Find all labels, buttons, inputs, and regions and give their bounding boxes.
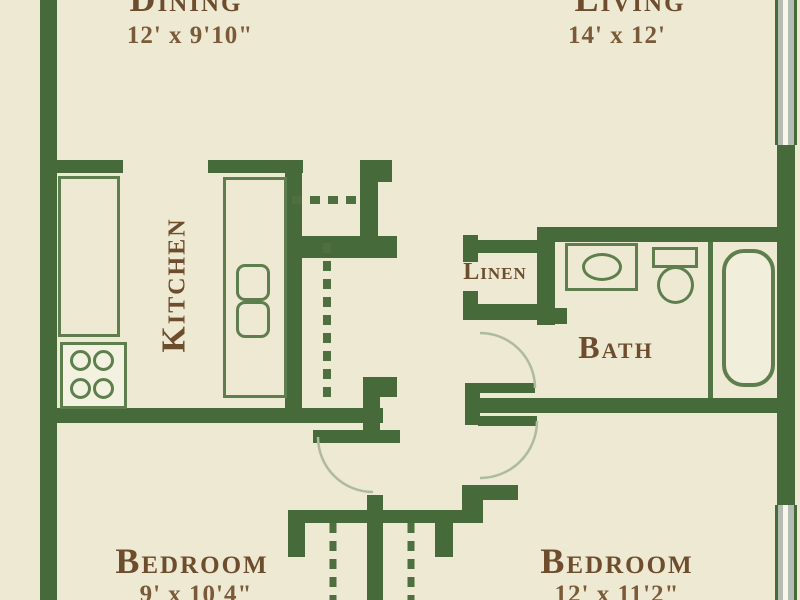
closet-wall-lower-flange	[363, 377, 397, 397]
stove-burner	[93, 378, 114, 399]
right-exterior-wall	[777, 145, 795, 505]
linen-label: Linen	[463, 258, 527, 287]
dining-label: Dining	[129, 0, 242, 21]
linen-bottom-wall	[477, 304, 537, 320]
kitchen-label: Kitchen	[155, 217, 196, 352]
bedroom-right-label: Bedroom	[540, 540, 693, 583]
stove-burner	[70, 350, 91, 371]
hall-door-arc	[318, 437, 373, 492]
kitchen-sink-basin	[236, 301, 270, 338]
stove-burner	[70, 378, 91, 399]
closet-wall-upper-flange	[360, 160, 392, 182]
kitchen-counter-left	[58, 176, 120, 337]
stove-burner	[93, 350, 114, 371]
dining-dimensions: 12' x 9'10"	[127, 22, 253, 50]
stove	[60, 342, 127, 409]
bath-door-arc	[480, 333, 535, 388]
linen-right-foot	[537, 308, 567, 324]
living-label: Living	[574, 0, 685, 21]
bedroom-corner-flange	[462, 485, 518, 500]
bath-door-leaf	[478, 383, 535, 393]
bedroom-door-arc	[480, 421, 537, 478]
bedroom-closet-stub-right	[435, 523, 453, 557]
kitchen-bedroom-wall	[40, 408, 383, 423]
linen-jamb-bottom	[463, 291, 478, 320]
bath-label: Bath	[578, 328, 653, 366]
kitchen-sink-basin	[236, 264, 270, 301]
linen-top-wall	[477, 240, 537, 253]
kitchen-top-wall-left	[57, 160, 123, 173]
kitchen-peninsula-wall	[285, 170, 302, 415]
toilet-tank	[652, 247, 698, 268]
tub-divider-wall	[708, 242, 713, 398]
living-room-window	[775, 0, 797, 145]
bathtub	[722, 249, 775, 387]
hall-door-leaf	[313, 430, 400, 443]
left-exterior-wall	[40, 0, 57, 600]
bath-bottom-wall	[478, 398, 795, 413]
bedroom-closet-wall	[288, 510, 483, 523]
bedroom-right-dimensions: 12' x 11'2"	[555, 581, 680, 600]
bedroom-divider-wall	[367, 495, 383, 600]
closet-bottom-wall	[300, 236, 397, 258]
bedroom-door-leaf	[478, 416, 537, 426]
bath-top-wall	[537, 227, 795, 242]
living-dimensions: 14' x 12'	[568, 22, 666, 50]
bedroom-left-dimensions: 9' x 10'4"	[140, 581, 253, 600]
toilet-bowl	[657, 266, 694, 304]
bedroom-left-label: Bedroom	[115, 540, 268, 583]
bedroom-closet-stub-left	[288, 510, 305, 557]
bedroom-window	[775, 505, 797, 600]
floorplan: Dining 12' x 9'10" Living 14' x 12' Kitc…	[0, 0, 800, 600]
bath-sink	[582, 253, 622, 281]
